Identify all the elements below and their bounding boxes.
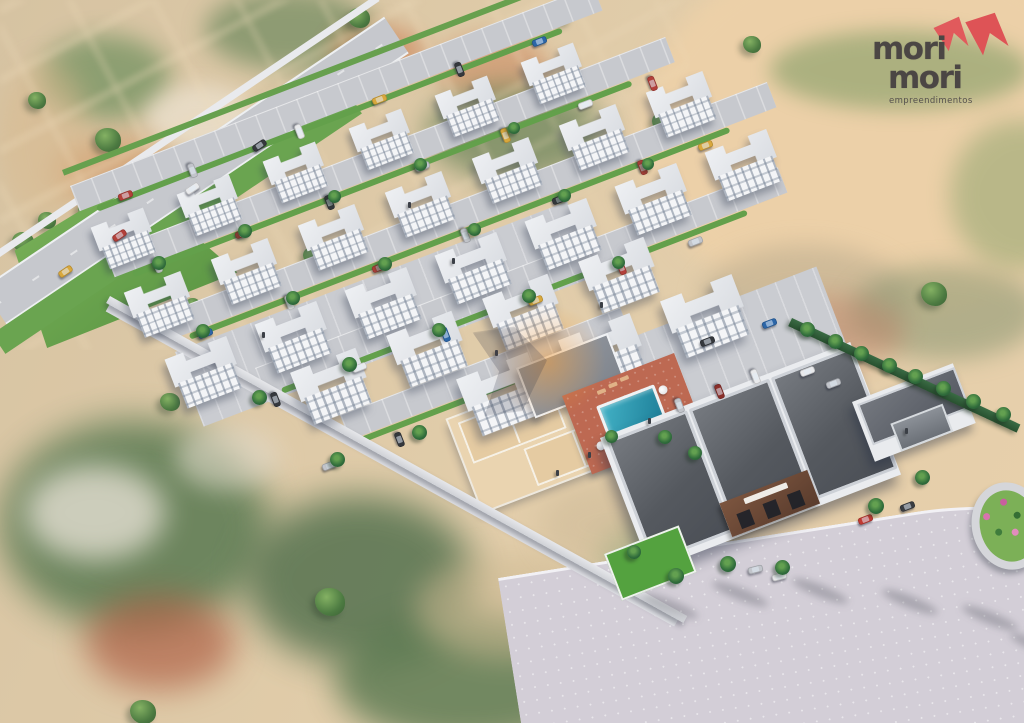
- car: [674, 397, 686, 414]
- car-windshield: [502, 132, 509, 140]
- car: [294, 123, 306, 140]
- pedestrian: [408, 202, 411, 208]
- car-windshield: [716, 388, 723, 396]
- car-windshield: [272, 396, 279, 404]
- car-windshield: [582, 101, 590, 108]
- car: [270, 391, 282, 408]
- palm-tree: [966, 394, 981, 409]
- car: [454, 61, 466, 78]
- palm-tree: [658, 430, 672, 444]
- palm-tree: [800, 322, 815, 337]
- palm-tree: [432, 323, 446, 337]
- palm-tree: [412, 425, 427, 440]
- palm-tree: [642, 158, 654, 170]
- car-windshield: [752, 373, 759, 381]
- development-site: [0, 0, 1024, 723]
- car: [577, 99, 594, 111]
- pedestrian: [262, 332, 265, 338]
- pedestrian: [452, 258, 455, 264]
- palm-shadow: [1008, 629, 1024, 663]
- palm-tree: [668, 568, 684, 584]
- car-windshield: [676, 402, 683, 410]
- car-windshield: [704, 338, 712, 345]
- palm-tree: [854, 346, 869, 361]
- car: [747, 564, 763, 574]
- palm-tree: [828, 334, 843, 349]
- palm-tree: [688, 446, 702, 460]
- palm-tree: [328, 190, 341, 203]
- palm-tree: [612, 256, 625, 269]
- aerial-render-canvas: mori mori empreendimentos: [0, 0, 1024, 723]
- palm-tree: [627, 545, 641, 559]
- car-windshield: [766, 320, 774, 327]
- logo-wordmark-line2: mori: [888, 63, 962, 94]
- palm-tree: [522, 289, 536, 303]
- car: [699, 336, 716, 348]
- car-windshield: [296, 128, 303, 136]
- car-windshield: [536, 38, 544, 45]
- car: [799, 366, 816, 378]
- palm-tree: [936, 381, 951, 396]
- palm-tree: [996, 407, 1011, 422]
- palm-tree: [330, 452, 345, 467]
- palm-tree: [882, 358, 897, 373]
- car-windshield: [122, 192, 130, 199]
- car: [111, 228, 127, 242]
- pedestrian: [648, 418, 651, 424]
- car: [825, 378, 842, 390]
- palm-shadow: [880, 585, 940, 619]
- car-windshield: [456, 66, 463, 74]
- palm-tree: [152, 256, 166, 270]
- palm-tree: [775, 560, 790, 575]
- palm-tree: [605, 430, 618, 443]
- palm-shadow: [640, 589, 700, 623]
- car: [251, 138, 267, 152]
- pedestrian: [600, 302, 603, 308]
- palm-tree: [378, 257, 392, 271]
- pedestrian: [588, 452, 591, 458]
- palm-tree: [720, 556, 736, 572]
- car-windshield: [396, 436, 403, 444]
- palm-tree: [414, 158, 427, 171]
- car: [371, 94, 388, 106]
- car-windshield: [830, 380, 838, 387]
- car: [750, 368, 762, 385]
- car: [697, 140, 714, 152]
- cars-and-landscape-layer: [0, 0, 1024, 723]
- car-windshield: [255, 142, 263, 150]
- palm-shadow: [790, 574, 850, 608]
- palm-tree: [238, 224, 252, 238]
- palm-tree: [286, 291, 300, 305]
- car: [899, 501, 916, 513]
- car: [857, 514, 874, 526]
- car: [714, 383, 726, 400]
- car: [57, 264, 73, 278]
- car: [184, 181, 200, 195]
- developer-logo: mori mori empreendimentos: [862, 8, 1018, 108]
- logo-tagline: empreendimentos: [889, 96, 973, 106]
- pedestrian: [556, 470, 559, 476]
- car-windshield: [188, 185, 196, 193]
- palm-tree: [558, 189, 571, 202]
- car: [531, 36, 548, 48]
- palm-tree: [468, 223, 481, 236]
- palm-tree: [868, 498, 884, 514]
- palm-tree: [508, 122, 520, 134]
- car-windshield: [752, 566, 760, 573]
- palm-shadow: [710, 577, 770, 611]
- car-windshield: [189, 167, 196, 175]
- car-windshield: [904, 503, 912, 510]
- car: [187, 162, 199, 179]
- car-windshield: [376, 96, 384, 103]
- car-windshield: [692, 238, 700, 245]
- car: [647, 75, 659, 92]
- palm-tree: [342, 357, 357, 372]
- pedestrian: [495, 350, 498, 356]
- pedestrian: [905, 428, 908, 434]
- car-windshield: [702, 142, 710, 149]
- car-windshield: [115, 232, 123, 240]
- palm-tree: [252, 390, 267, 405]
- palm-tree: [908, 369, 923, 384]
- palm-shadow: [960, 601, 1020, 635]
- car: [687, 236, 704, 248]
- car-windshield: [61, 268, 69, 276]
- car-windshield: [649, 80, 656, 88]
- car-windshield: [862, 516, 870, 523]
- palm-tree: [196, 324, 210, 338]
- palm-tree: [915, 470, 930, 485]
- car-windshield: [804, 368, 812, 375]
- car: [394, 431, 406, 448]
- car: [761, 318, 778, 330]
- car: [117, 190, 134, 202]
